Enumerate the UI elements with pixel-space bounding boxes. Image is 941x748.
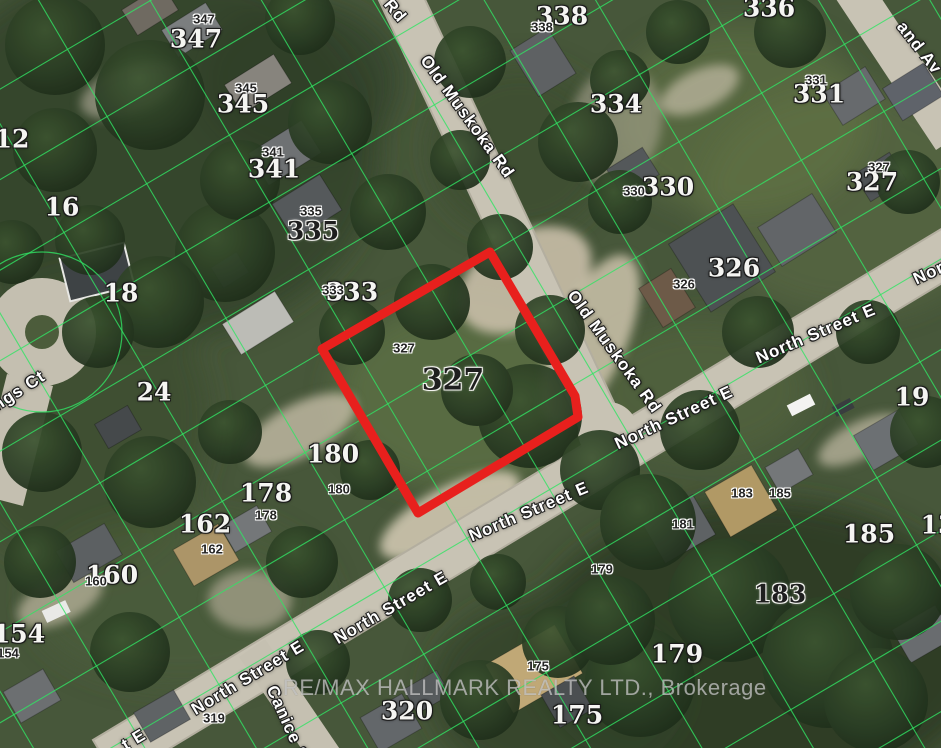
parcel-number-label: 18 <box>104 279 139 308</box>
parcel-number-label: 330 <box>642 173 694 202</box>
address-number-label: 319 <box>203 711 225 726</box>
street-name-label: ngs Ct <box>0 367 49 416</box>
satellite-map: Old Muskoka RdOld Muskoka RdRdand AvNort… <box>0 0 941 748</box>
address-number-label: 347 <box>193 12 215 27</box>
map-labels-layer: Old Muskoka RdOld Muskoka RdRdand AvNort… <box>0 0 941 748</box>
street-name-label: Nort <box>910 255 941 290</box>
parcel-number-label: 24 <box>137 378 172 407</box>
parcel-number-label: 326 <box>708 254 760 283</box>
address-number-label: 181 <box>672 517 694 532</box>
address-number-label: 175 <box>527 659 549 674</box>
parcel-number-label: 347 <box>170 25 222 54</box>
address-number-label: 335 <box>300 204 322 219</box>
parcel-number-label: 12 <box>0 125 29 154</box>
street-name-label: North Street E <box>466 478 592 547</box>
address-number-label: 183 <box>731 486 753 501</box>
address-number-label: 327 <box>393 341 415 356</box>
address-number-label: 162 <box>201 542 223 557</box>
parcel-number-label: 13 <box>921 511 941 540</box>
street-name-label: and Av <box>892 18 941 79</box>
address-number-label: 160 <box>85 574 107 589</box>
street-name-label: t E <box>118 725 150 748</box>
parcel-number-label: 16 <box>45 193 80 222</box>
parcel-number-label: 154 <box>0 620 45 649</box>
address-number-label: 327 <box>868 160 890 175</box>
parcel-number-label: 334 <box>590 90 642 119</box>
address-number-label: 331 <box>805 73 827 88</box>
parcel-number-label: 175 <box>551 701 603 730</box>
parcel-number-label: 178 <box>240 479 292 508</box>
street-name-label: Old Muskoka Rd <box>563 287 666 418</box>
address-number-label: 180 <box>328 482 350 497</box>
street-name-label: North Street E <box>330 567 451 648</box>
parcel-number-label: 19 <box>895 383 930 412</box>
parcel-number-label: 336 <box>743 0 795 23</box>
parcel-number-label: 327 <box>422 363 485 398</box>
address-number-label: 330 <box>623 184 645 199</box>
address-number-label: 178 <box>255 508 277 523</box>
brokerage-watermark: RE/MAX HALLMARK REALTY LTD., Brokerage <box>283 675 767 701</box>
parcel-number-label: 179 <box>651 640 703 669</box>
street-name-label: Old Muskoka Rd <box>416 52 519 183</box>
street-name-label: North Street E <box>753 300 879 369</box>
address-number-label: 345 <box>235 81 257 96</box>
address-number-label: 338 <box>531 20 553 35</box>
parcel-number-label: 183 <box>754 580 806 609</box>
parcel-number-label: 162 <box>179 510 231 539</box>
address-number-label: 185 <box>769 486 791 501</box>
address-number-label: 154 <box>0 646 19 661</box>
address-number-label: 333 <box>322 283 344 298</box>
parcel-number-label: 180 <box>307 440 359 469</box>
address-number-label: 341 <box>262 145 284 160</box>
parcel-number-label: 335 <box>287 217 339 246</box>
parcel-number-label: 185 <box>843 520 895 549</box>
address-number-label: 326 <box>673 277 695 292</box>
address-number-label: 179 <box>591 562 613 577</box>
street-name-label: Rd <box>379 0 410 27</box>
